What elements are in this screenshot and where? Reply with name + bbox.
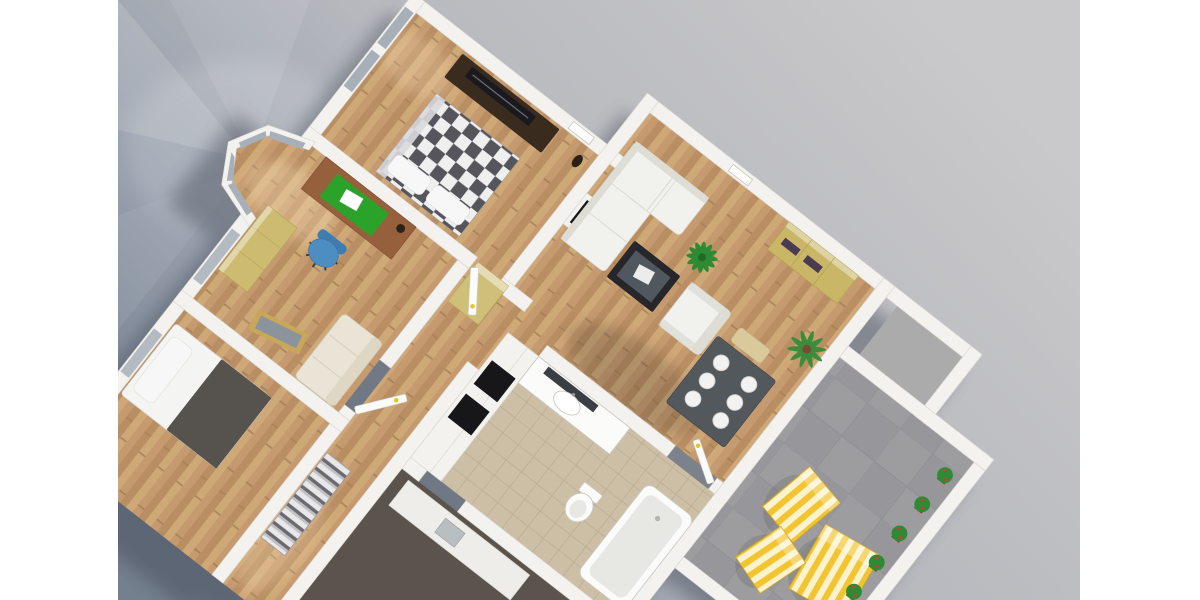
- floor-plan-render-stage: [0, 0, 1200, 600]
- floor-plan-render: [0, 0, 1200, 600]
- photo-area: [0, 0, 1080, 600]
